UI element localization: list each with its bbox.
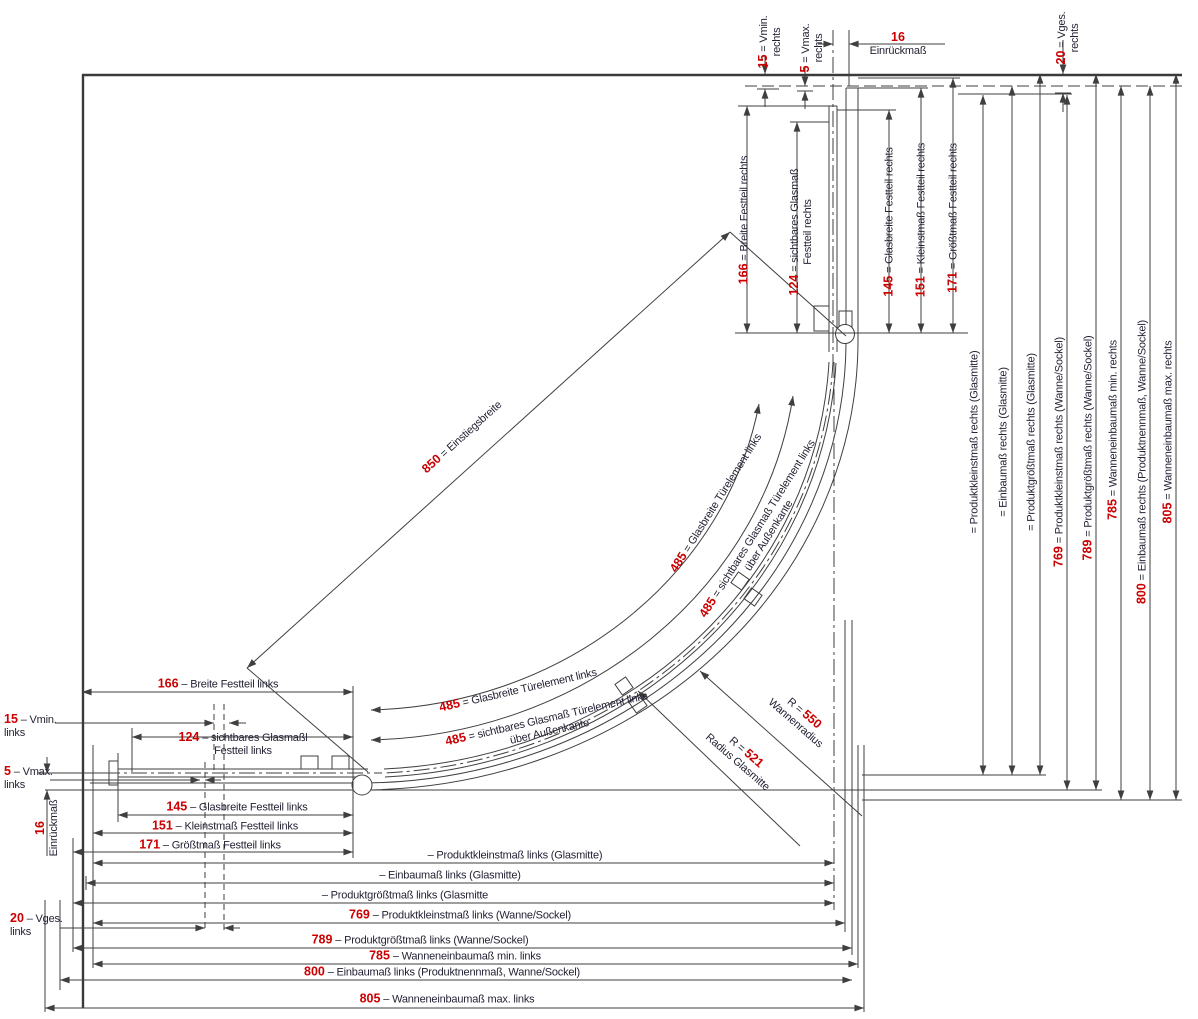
dim-vmin-links: 15 – Vmin.links [4, 712, 57, 740]
dim-einbaumass-rechts-produktnennmass-value: 800 [1135, 583, 1149, 604]
dim-einbaumass-rechts-glasmitte: = Einbaumaß rechts (Glasmitte) [998, 367, 1011, 517]
dim-produktkleinstmass-rechts-wanne-value: 769 [1052, 546, 1066, 567]
dim-einbaumass-rechts-glasmitte-text: = Einbaumaß rechts (Glasmitte) [998, 367, 1010, 517]
dim-einrueckmass-rechts: 16Einrückmaß [870, 30, 927, 58]
dim-produktkleinstmass-rechts-wanne: 769 = Produktkleinstmaß rechts (Wanne/So… [1052, 337, 1067, 567]
dimension-labels-layer: 15 = Vmin.rechts5 = Vmax.rechts16Einrück… [0, 0, 1198, 1019]
dim-wanneneinbaumass-min-rechts-value: 785 [1106, 499, 1120, 520]
dim-breite-festteil-links-value: 166 [158, 677, 179, 691]
dim-vmin-links-text: – Vmin. [21, 714, 57, 726]
dim-produktkleinstmass-rechts-glasmitte: = Produktkleinstmaß rechts (Glasmitte) [969, 351, 982, 534]
dim-wanneneinbaumass-max-links-value: 805 [360, 992, 381, 1006]
dim-glasbreite-festteil-links: 145 – Glasbreite Festteil links [166, 800, 307, 815]
dim-wanneneinbaumass-max-rechts: 805 = Wanneneinbaumaß max. rechts [1161, 341, 1176, 524]
dim-vges-rechts-text: = Vges. [1056, 12, 1068, 48]
dim-einbaumass-links-produktnennmass: 800 – Einbaumaß links (Produktnennmaß, W… [304, 965, 580, 980]
dim-groesstmass-festteil-links: 171 – Größtmaß Festteil links [139, 838, 281, 853]
dim-produktkleinstmass-links-wanne: 769 – Produktkleinstmaß links (Wanne/Soc… [349, 908, 571, 923]
dim-einbaumass-rechts-produktnennmass-text: = Einbaumaß rechts (Produktnennmaß, Wann… [1137, 320, 1149, 580]
dim-breite-festteil-rechts-value: 166 [737, 263, 751, 284]
dim-kleinstmass-festteil-rechts-value: 151 [914, 276, 928, 297]
dim-produktkleinstmass-rechts-wanne-text: = Produktkleinstmaß rechts (Wanne/Sockel… [1054, 337, 1066, 543]
dim-wanneneinbaumass-min-rechts: 785 = Wanneneinbaumaß min. rechts [1106, 340, 1121, 520]
dim-wanneneinbaumass-min-links: 785 – Wanneneinbaumaß min. links [369, 949, 541, 964]
dim-produktgroesstmass-links-wanne: 789 – Produktgrößtmaß links (Wanne/Socke… [312, 933, 529, 948]
dim-vmax-rechts-text: = Vmax. [800, 23, 812, 62]
dim-produktgroesstmass-links-glasmitte-text: – Produktgrößtmaß links (Glasmitte [322, 890, 488, 902]
dim-einbaumass-links-glasmitte-text: – Einbaumaß links (Glasmitte) [379, 870, 521, 882]
dim-einstiegsbreite: 850 = Einstiegsbreite [419, 397, 505, 476]
dim-wanneneinbaumass-max-rechts-value: 805 [1161, 503, 1175, 524]
dim-produktkleinstmass-links-glasmitte: – Produktkleinstmaß links (Glasmitte) [428, 850, 603, 863]
dim-produktgroesstmass-rechts-glasmitte-text: = Produktgrößtmaß rechts (Glasmitte) [1026, 353, 1038, 531]
dim-breite-festteil-rechts-text: = Breite Festteil rechts [739, 156, 751, 261]
dim-glasbreite-festteil-rechts-value: 145 [882, 276, 896, 297]
dim-kleinstmass-festteil-rechts: 151 = Kleinstmaß Festteil rechts [914, 143, 929, 297]
dim-groesstmass-festteil-links-text: – Größtmaß Festteil links [163, 840, 281, 852]
dim-breite-festteil-rechts: 166 = Breite Festteil rechts [737, 156, 752, 285]
dim-sichtbares-glasmass-festteil-rechts-value: 124 [787, 275, 801, 296]
dim-einbaumass-rechts-produktnennmass: 800 = Einbaumaß rechts (Produktnennmaß, … [1135, 320, 1150, 604]
dim-glasbreite-festteil-rechts: 145 = Glasbreite Festteil rechts [882, 147, 897, 296]
dim-kleinstmass-festteil-links: 151 – Kleinstmaß Festteil links [152, 819, 298, 834]
dim-einrueckmass-links-value: 16 [33, 821, 47, 835]
dim-produktgroesstmass-links-wanne-value: 789 [312, 933, 333, 947]
dim-produktgroesstmass-links-wanne-text: – Produktgrößtmaß links (Wanne/Sockel) [335, 935, 528, 947]
dim-vmin-rechts: 15 = Vmin.rechts [756, 16, 784, 69]
dim-sichtbares-glasmass-festteil-links-text2: Festteil links [179, 745, 308, 758]
dim-kleinstmass-festteil-links-text: – Kleinstmaß Festteil links [176, 821, 298, 833]
dim-einbaumass-links-glasmitte: – Einbaumaß links (Glasmitte) [379, 870, 521, 883]
dim-vmax-rechts-value: 5 [798, 66, 812, 73]
dim-vmin-rechts-text2: rechts [771, 16, 784, 69]
dim-wannenradius: R = 550Wannenradius [765, 685, 835, 751]
dim-groesstmass-festteil-rechts-text: = Größtmaß Festteil rechts [948, 143, 960, 269]
dim-vmax-links-value: 5 [4, 764, 11, 778]
dim-glasbreite-festteil-links-text: – Glasbreite Festteil links [190, 802, 307, 814]
dim-vges-rechts-value: 20 [1054, 51, 1068, 65]
dim-wanneneinbaumass-max-links-text: – Wanneneinbaumaß max. links [383, 994, 534, 1006]
dim-sichtbares-glasmass-festteil-rechts-text2: Festteil rechts [802, 168, 815, 295]
dim-vmin-rechts-text: = Vmin. [758, 16, 770, 52]
dim-wanneneinbaumass-min-rechts-text: = Wanneneinbaumaß min. rechts [1108, 340, 1120, 496]
dim-vmin-links-text2: links [4, 727, 57, 740]
dim-groesstmass-festteil-rechts-value: 171 [946, 272, 960, 293]
dim-glasbreite-festteil-rechts-text: = Glasbreite Festteil rechts [884, 147, 896, 273]
dim-vmin-rechts-value: 15 [756, 55, 770, 69]
dim-vges-rechts: 20 = Vges.rechts [1054, 12, 1082, 65]
dim-groesstmass-festteil-links-value: 171 [139, 838, 160, 852]
dim-sichtbares-glasmass-tuerelement-links-oben: 485 = sichtbares Glasmaß Türelement link… [696, 437, 829, 627]
dim-produktgroesstmass-rechts-wanne-text: = Produktgrößtmaß rechts (Wanne/Sockel) [1083, 336, 1095, 537]
dim-glasbreite-tuerelement-links-unten-value: 485 [438, 696, 461, 714]
dim-einrueckmass-rechts-value: 16 [891, 30, 905, 44]
dim-radius-glasmitte: R = 521Radius Glasmitte [702, 720, 781, 794]
technical-drawing-shower-enclosure: 15 = Vmin.rechts5 = Vmax.rechts16Einrück… [0, 0, 1198, 1019]
dim-wanneneinbaumass-min-links-text: – Wanneneinbaumaß min. links [393, 951, 541, 963]
dim-sichtbares-glasmass-tuerelement-links-oben-text: = sichtbares Glasmaß Türelement links [711, 438, 818, 600]
dim-sichtbares-glasmass-festteil-links-value: 124 [179, 730, 200, 744]
dim-vmin-links-value: 15 [4, 712, 18, 726]
dim-einrueckmass-links: 16Einrückmaß [33, 800, 61, 857]
dim-produktgroesstmass-rechts-wanne-value: 789 [1081, 540, 1095, 561]
dim-einrueckmass-links-text2: Einrückmaß [48, 800, 61, 857]
dim-sichtbares-glasmass-festteil-links-text: – sichtbares Glasmaßl [202, 732, 307, 744]
dim-glasbreite-festteil-links-value: 145 [166, 800, 187, 814]
dim-vmax-links-text2: links [4, 779, 53, 792]
dim-sichtbares-glasmass-festteil-rechts-text: = sichtbares Glasmaß [789, 168, 801, 271]
dim-sichtbares-glasmass-festteil-links: 124 – sichtbares GlasmaßlFestteil links [179, 730, 308, 758]
dim-vges-links-value: 20 [10, 911, 24, 925]
dim-produktgroesstmass-rechts-glasmitte: = Produktgrößtmaß rechts (Glasmitte) [1026, 353, 1039, 531]
dim-wanneneinbaumass-min-links-value: 785 [369, 949, 390, 963]
dim-vges-rechts-text2: rechts [1069, 12, 1082, 65]
dim-kleinstmass-festteil-rechts-text: = Kleinstmaß Festteil rechts [916, 143, 928, 273]
dim-wanneneinbaumass-max-rechts-text: = Wanneneinbaumaß max. rechts [1163, 341, 1175, 500]
dim-sichtbares-glasmass-festteil-rechts: 124 = sichtbares GlasmaßFestteil rechts [787, 168, 815, 295]
dim-produktkleinstmass-rechts-glasmitte-text: = Produktkleinstmaß rechts (Glasmitte) [969, 351, 981, 534]
dim-produktkleinstmass-links-wanne-value: 769 [349, 908, 370, 922]
dim-groesstmass-festteil-rechts: 171 = Größtmaß Festteil rechts [946, 143, 961, 293]
dim-einrueckmass-rechts-text2: Einrückmaß [870, 45, 927, 58]
dim-breite-festteil-links: 166 – Breite Festteil links [158, 677, 279, 692]
dim-breite-festteil-links-text: – Breite Festteil links [181, 679, 278, 691]
dim-vmax-links: 5 – Vmax.links [4, 764, 53, 792]
dim-glasbreite-tuerelement-links-oben-value: 485 [667, 550, 690, 575]
dim-kleinstmass-festteil-links-value: 151 [152, 819, 173, 833]
dim-einbaumass-links-produktnennmass-value: 800 [304, 965, 325, 979]
dim-einstiegsbreite-text: = Einstiegsbreite [438, 399, 504, 460]
dim-vmax-links-text: – Vmax. [14, 766, 53, 778]
dim-wanneneinbaumass-max-links: 805 – Wanneneinbaumaß max. links [360, 992, 535, 1007]
dim-vges-links-text2: links [10, 926, 63, 939]
dim-produktgroesstmass-links-glasmitte: – Produktgrößtmaß links (Glasmitte [322, 890, 488, 903]
dim-einstiegsbreite-value: 850 [419, 452, 444, 476]
dim-vmax-rechts-text2: rechts [813, 23, 826, 72]
dim-einbaumass-links-produktnennmass-text: – Einbaumaß links (Produktnennmaß, Wanne… [328, 967, 580, 979]
dim-vmax-rechts: 5 = Vmax.rechts [798, 23, 826, 72]
dim-produktgroesstmass-rechts-wanne: 789 = Produktgrößtmaß rechts (Wanne/Sock… [1081, 336, 1096, 561]
dim-vges-links: 20 – Vges.links [10, 911, 63, 939]
dim-vges-links-text: – Vges. [27, 913, 63, 925]
dim-produktkleinstmass-links-glasmitte-text: – Produktkleinstmaß links (Glasmitte) [428, 850, 603, 862]
dim-produktkleinstmass-links-wanne-text: – Produktkleinstmaß links (Wanne/Sockel) [373, 910, 571, 922]
